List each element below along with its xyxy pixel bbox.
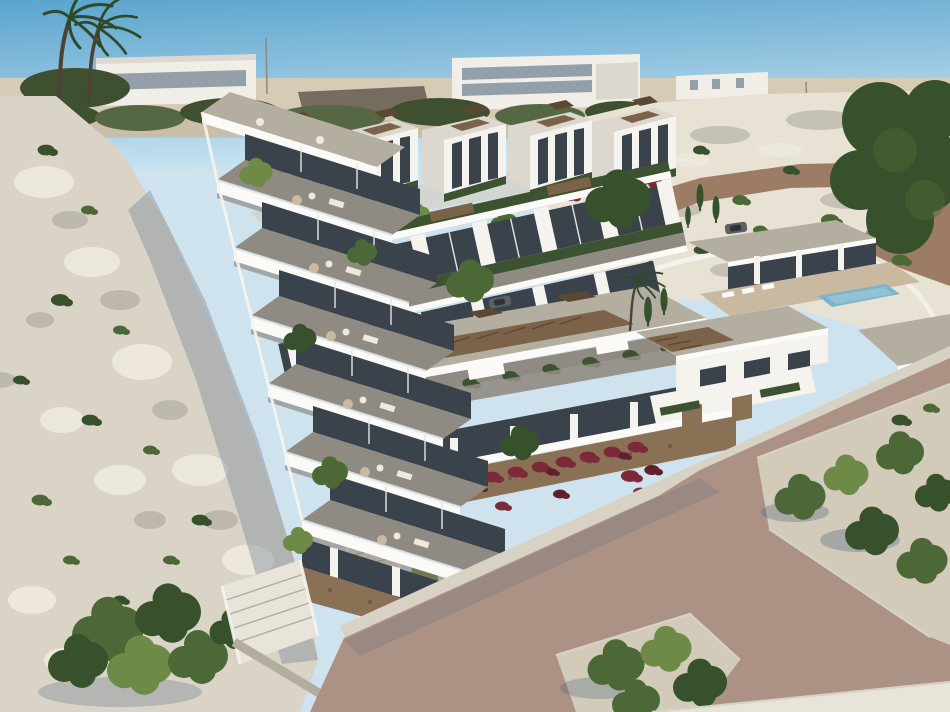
render-canvas (0, 0, 950, 712)
light-pole (266, 38, 267, 94)
bougainvillea (644, 465, 663, 475)
bougainvillea (621, 470, 643, 482)
architectural-render: Computer-generated aerial view of a new-… (0, 0, 950, 712)
